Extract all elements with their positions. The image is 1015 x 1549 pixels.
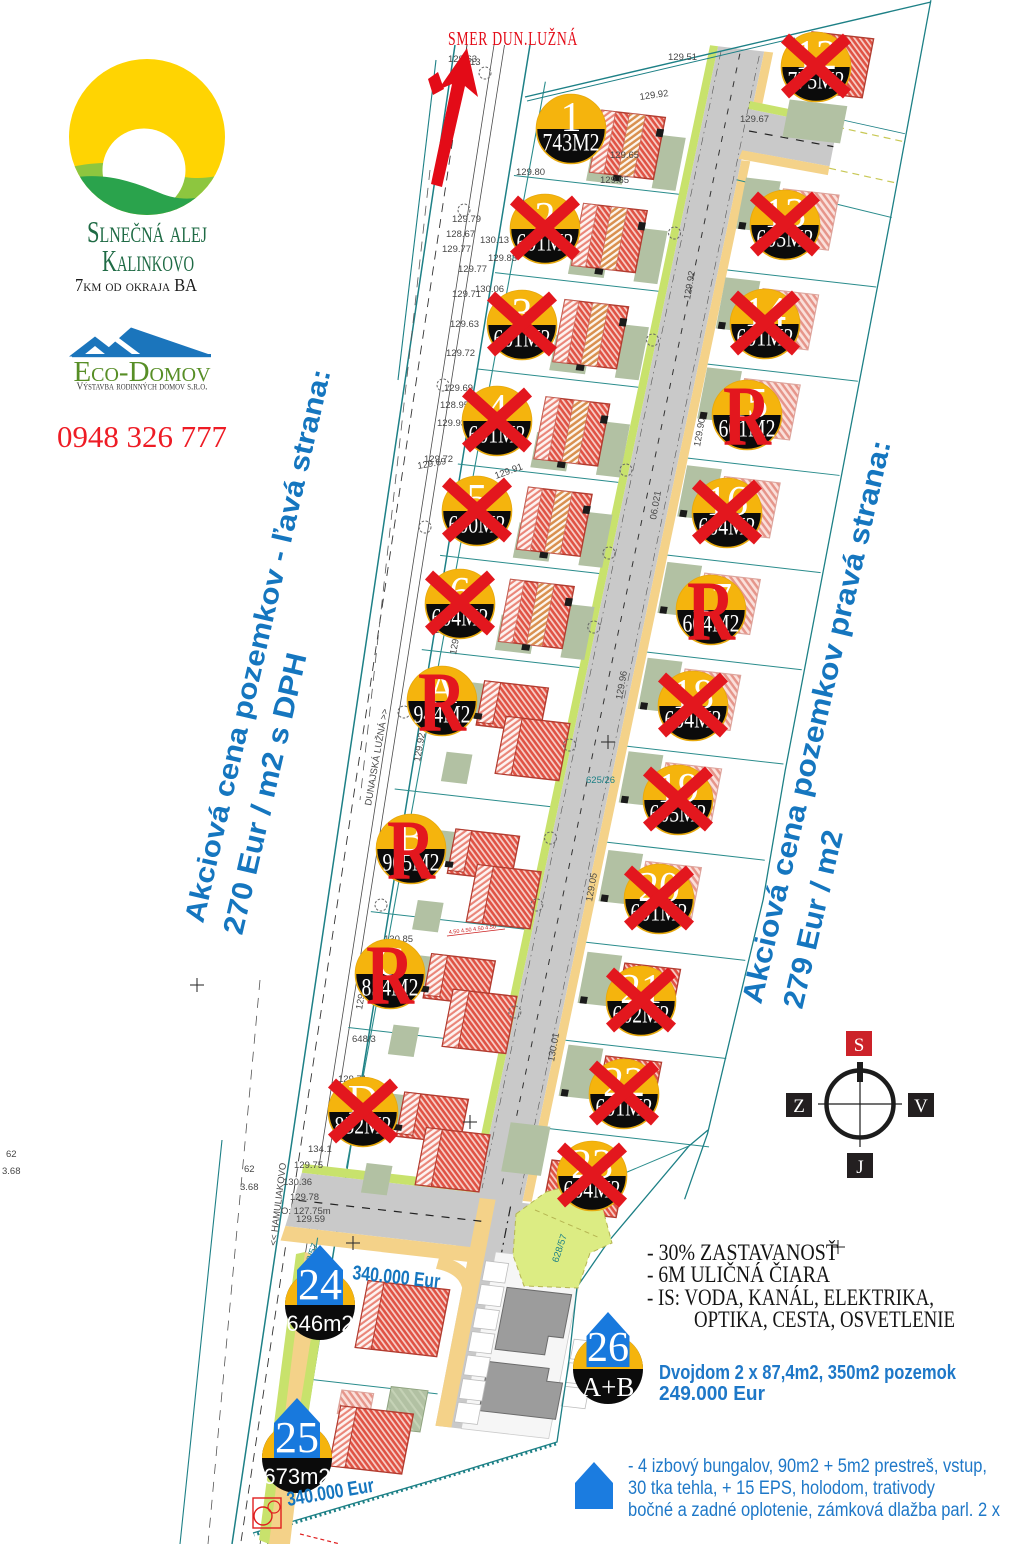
svg-text:129.65: 129.65	[600, 175, 629, 186]
svg-text:62: 62	[6, 1149, 17, 1160]
svg-text:129.77: 129.77	[458, 264, 487, 275]
svg-text:Kalinkovo: Kalinkovo	[102, 243, 194, 278]
svg-text:13: 13	[470, 57, 481, 68]
svg-text:134.1: 134.1	[308, 1144, 332, 1155]
svg-text:129.67: 129.67	[740, 114, 769, 125]
svg-text:129.75: 129.75	[294, 1160, 323, 1171]
svg-text:SMER DUN.LUŽNÁ: SMER DUN.LUŽNÁ	[448, 27, 578, 50]
svg-text:7km od okraja BA: 7km od okraja BA	[75, 275, 197, 295]
svg-text:R: R	[366, 927, 415, 1023]
svg-text:130.06: 130.06	[475, 284, 504, 295]
svg-text:V: V	[914, 1096, 928, 1117]
svg-text:Výstavba rodinných domov s.r.o: Výstavba rodinných domov s.r.o.	[77, 381, 208, 393]
svg-text:129.65: 129.65	[610, 150, 639, 161]
svg-text:3.68: 3.68	[2, 1166, 21, 1177]
svg-text:129.77: 129.77	[442, 244, 471, 255]
svg-text:62: 62	[244, 1164, 255, 1175]
svg-text:25: 25	[275, 1413, 319, 1462]
svg-text:743M2: 743M2	[543, 130, 600, 157]
svg-text:130.36: 130.36	[283, 1177, 312, 1188]
svg-text:129.63: 129.63	[450, 319, 479, 330]
svg-text:129.78: 129.78	[290, 1192, 319, 1203]
svg-text:130.13: 130.13	[480, 235, 509, 246]
svg-text:R: R	[418, 654, 467, 750]
svg-text:R: R	[387, 802, 436, 898]
svg-text:26: 26	[587, 1325, 629, 1371]
svg-text:625/26: 625/26	[586, 775, 615, 786]
svg-text:R: R	[723, 368, 772, 464]
svg-text:129.80: 129.80	[516, 167, 545, 178]
svg-text:129.59: 129.59	[296, 1214, 325, 1225]
svg-text:3.68: 3.68	[240, 1182, 259, 1193]
svg-text:OPTIKA, CESTA, OSVETLENIE: OPTIKA, CESTA, OSVETLENIE	[694, 1307, 955, 1332]
svg-text:129.51: 129.51	[668, 52, 697, 63]
svg-text:S: S	[854, 1035, 865, 1056]
svg-text:Dvojdom 2 x 87,4m2, 350m2 poze: Dvojdom 2 x 87,4m2, 350m2 pozemok	[659, 1362, 957, 1384]
svg-text:0948 326 777: 0948 326 777	[57, 419, 227, 454]
svg-text:129.72: 129.72	[446, 348, 475, 359]
svg-text:129.93: 129.93	[437, 418, 466, 429]
svg-text:24: 24	[298, 1260, 342, 1309]
svg-text:- 4 izbový bungalov, 90m2 + 5m: - 4 izbový bungalov, 90m2 + 5m2 prestreš…	[628, 1456, 987, 1477]
svg-text:646m2: 646m2	[286, 1311, 353, 1336]
svg-text:249.000 Eur: 249.000 Eur	[659, 1383, 765, 1405]
svg-text:648/3: 648/3	[352, 1034, 376, 1045]
svg-text:bočné a zadné oplotenie, zámko: bočné a zadné oplotenie, zámková dlažba …	[628, 1500, 1000, 1521]
svg-text:R: R	[687, 563, 736, 659]
svg-text:129.83: 129.83	[488, 253, 517, 264]
svg-text:J: J	[856, 1157, 863, 1178]
svg-text:30 tka tehla, + 15 EPS, holodo: 30 tka tehla, + 15 EPS, holodom, trativo…	[628, 1478, 935, 1499]
svg-text:Z: Z	[793, 1096, 805, 1117]
svg-text:- 6M ULIČNÁ ČIARA: - 6M ULIČNÁ ČIARA	[647, 1261, 830, 1287]
svg-text:129.79: 129.79	[452, 214, 481, 225]
svg-text:A+B: A+B	[582, 1372, 635, 1402]
svg-text:128.67: 128.67	[446, 229, 475, 240]
